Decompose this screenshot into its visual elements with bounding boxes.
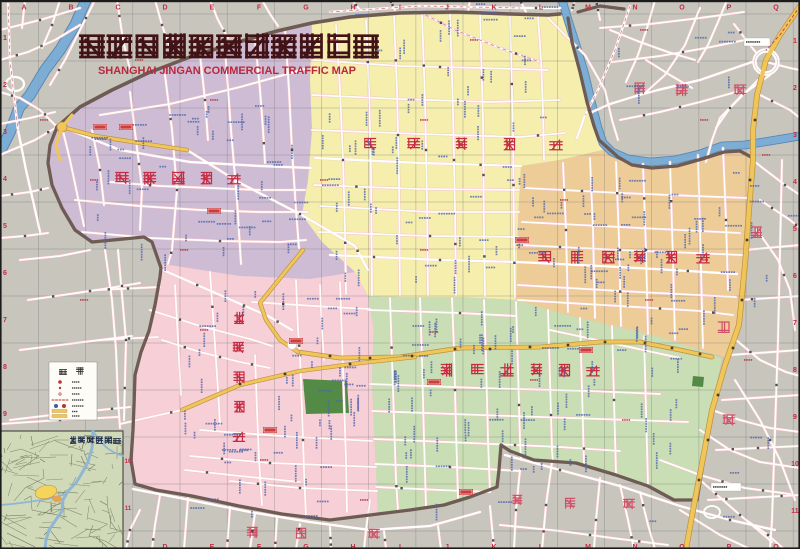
svg-text:6: 6 [3, 270, 7, 277]
svg-text:C: C [115, 5, 120, 12]
svg-text:7: 7 [3, 317, 7, 324]
svg-text:I: I [399, 5, 401, 12]
svg-text:J: J [445, 5, 449, 12]
svg-text:9: 9 [793, 414, 797, 421]
svg-text:SHANGHAI JINGAN COMMERCIAL TRA: SHANGHAI JINGAN COMMERCIAL TRAFFIC MAP [98, 65, 356, 77]
svg-text:E: E [210, 5, 215, 12]
svg-text:6: 6 [793, 273, 797, 280]
svg-text:10: 10 [125, 459, 132, 465]
svg-text:9: 9 [3, 411, 7, 418]
svg-text:5: 5 [3, 223, 7, 230]
svg-text:3: 3 [793, 132, 797, 139]
svg-text:8: 8 [793, 367, 797, 374]
svg-text:2: 2 [3, 82, 7, 89]
svg-text:11: 11 [125, 506, 132, 512]
svg-text:B: B [68, 5, 73, 12]
svg-text:10: 10 [791, 461, 799, 468]
svg-text:5: 5 [793, 226, 797, 233]
svg-text:F: F [257, 5, 262, 12]
svg-text:P: P [727, 5, 732, 12]
svg-text:N: N [632, 5, 637, 12]
svg-text:3: 3 [3, 129, 7, 136]
svg-text:M: M [585, 5, 591, 12]
svg-text:O: O [679, 5, 685, 12]
svg-text:D: D [162, 5, 167, 12]
svg-text:2: 2 [793, 85, 797, 92]
svg-text:G: G [303, 5, 309, 12]
svg-text:4: 4 [793, 179, 797, 186]
svg-text:1: 1 [793, 38, 797, 45]
svg-text:11: 11 [791, 508, 799, 515]
svg-text:4: 4 [3, 176, 7, 183]
svg-text:Q: Q [773, 5, 779, 12]
svg-text:1: 1 [3, 35, 7, 42]
svg-text:7: 7 [793, 320, 797, 327]
svg-text:K: K [491, 5, 496, 12]
svg-text:A: A [21, 5, 26, 12]
svg-text:8: 8 [3, 364, 7, 371]
svg-text:H: H [350, 5, 355, 12]
